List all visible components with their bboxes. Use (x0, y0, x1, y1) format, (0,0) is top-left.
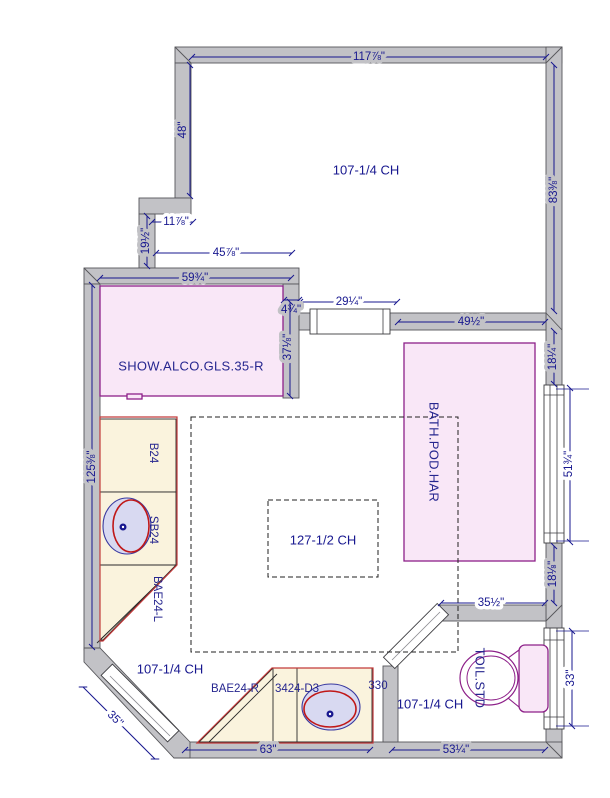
dim-label: 63" (260, 744, 277, 756)
toilet-label: TOIL.STD (473, 648, 488, 709)
dim-label: 117⅞" (353, 51, 385, 63)
cabinet-3424-d3-label: 3424-D3 (275, 683, 319, 695)
dim-label: 11⅞" (163, 216, 189, 228)
window-right-upper (544, 385, 564, 543)
toilet-bowl-outer (460, 651, 518, 705)
sink-bottom-drain-hole (329, 713, 331, 715)
dim-label: 18⅛" (547, 561, 559, 587)
dim-label: 48" (177, 122, 189, 139)
wall-step-top (139, 198, 191, 214)
toilet-tank (519, 645, 548, 712)
bath-pod (404, 343, 535, 561)
shower-notch (127, 394, 142, 399)
ceiling-label-top-room: 107-1/4 CH (333, 163, 399, 178)
dim-label: 33" (565, 670, 577, 687)
dim-label: 45⅞" (213, 247, 239, 259)
ceiling-label-toilet-room: 107-1/4 CH (397, 697, 463, 712)
dim-label: 49½" (458, 316, 484, 328)
dim-label: 59¾" (182, 272, 208, 284)
ceiling-label-bottom-left-room: 107-1/4 CH (137, 662, 203, 677)
wall-stub (383, 666, 398, 742)
door-leaf-line (110, 676, 170, 736)
cabinet-run-left (97, 417, 177, 643)
cabinet-sb24-label: SB24 (147, 516, 159, 545)
cabinet-bae24-r-label: BAE24-R (211, 683, 259, 695)
dim-label: 125⅜" (86, 451, 98, 484)
floor-plan-canvas: 117⅞" 48" 83⅜" 11⅞" 19½" 45⅞" 59¾" 29¼" (0, 0, 610, 798)
dim-label: 18¼" (547, 344, 559, 370)
dim-label: 53¼" (443, 744, 469, 756)
cabinet-bae24-l-label: BAE24-L (151, 576, 163, 623)
cabinet-b24 (100, 419, 176, 492)
dim-label: 19½" (140, 228, 152, 254)
floor-plan-page: 117⅞" 48" 83⅜" 11⅞" 19½" 45⅞" 59¾" 29¼" (0, 0, 610, 798)
dim-label: 37⅛" (282, 334, 294, 360)
bath-pod-label: BATH.POD.HAR (427, 402, 442, 502)
dim-step-width: 11⅞" (152, 216, 193, 228)
dim-label: 51¾" (563, 451, 575, 477)
door-leaf-line (392, 612, 440, 660)
shower-alcove (100, 286, 283, 396)
cabinet-330-label: 330 (368, 680, 387, 692)
dim-label: 35½" (478, 597, 504, 609)
ceiling-label-center-room: 127-1/2 CH (290, 533, 356, 548)
shower-label: SHOW.ALCO.GLS.35-R (118, 359, 264, 374)
dim-opening-width: 29¼" (300, 296, 397, 308)
dim-label: 4¾" (281, 304, 301, 316)
cabinet-b24-label: B24 (147, 443, 159, 464)
window-top-middle (310, 309, 390, 334)
dim-alcove-clear-width: 45⅞" (156, 247, 292, 259)
dim-label: 29¼" (336, 296, 362, 308)
dim-label: 83⅜" (548, 177, 560, 203)
sink-left-drain-hole (122, 526, 124, 528)
cabinet-run-bottom (197, 668, 373, 743)
